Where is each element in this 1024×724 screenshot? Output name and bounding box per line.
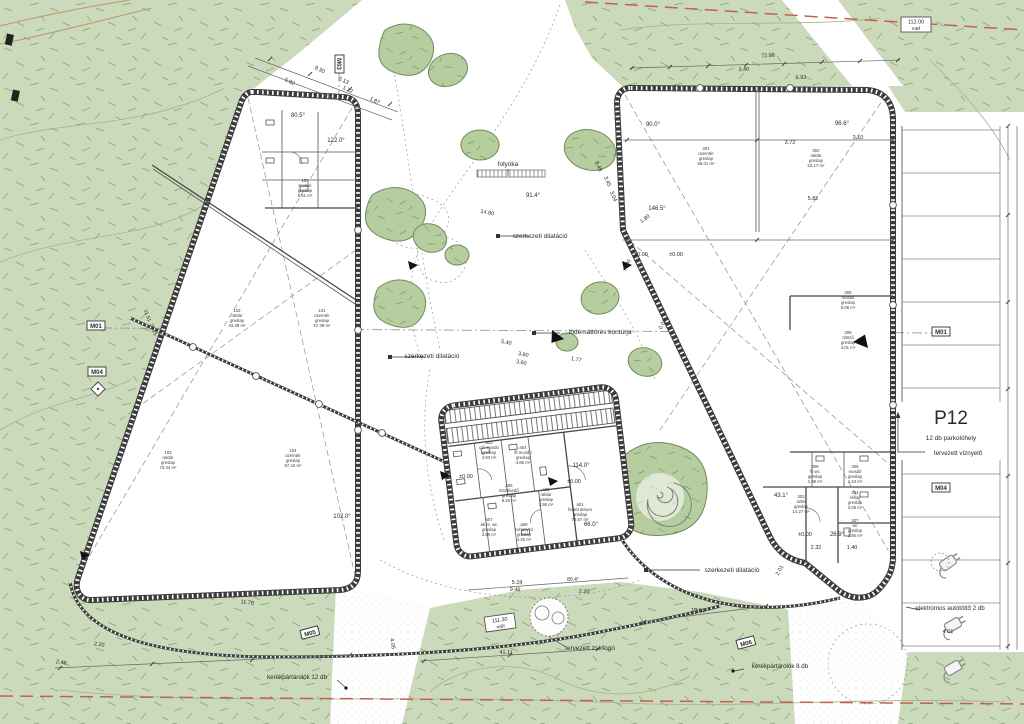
dim-label: 3.40 (738, 67, 749, 74)
survey-marker: M04 (88, 367, 106, 376)
dim-label: 5.28 (512, 580, 523, 587)
survey-marker-label: M04 (91, 370, 103, 376)
elevation-unit: mBf (912, 26, 921, 31)
callout-kerekpar-8: kerékpártárolók 8 db (752, 663, 809, 670)
dim-label: 4.01 (943, 629, 954, 636)
drain-channel (477, 170, 545, 177)
callout-kerekpar-12: kerékpártárolók 12 db (267, 674, 327, 681)
callout-zsirfogo: tervezett zsírfogó (565, 645, 615, 652)
callout-folyoka: folyóka (498, 161, 519, 168)
callout-fodem: födémáttörés kontúrja (569, 329, 632, 336)
survey-marker-label: M03 (335, 58, 341, 70)
dim-label: 3.72 (785, 140, 796, 146)
elevation-marker: 112.00mBf (901, 17, 931, 32)
level-label: ±0.00 (459, 474, 473, 480)
callout-dilatacio-2: szerkezeti dilatáció (405, 353, 460, 360)
survey-marker-label: M01 (90, 324, 102, 330)
level-label: ±0.00 (669, 252, 683, 258)
dim-label: 6.93 (795, 75, 806, 82)
angle-label: 66.0° (584, 522, 599, 528)
dim-label: 5.82 (808, 196, 819, 202)
grease-trap (530, 598, 568, 636)
parking-subtitle: 12 db parkolóhely (926, 435, 977, 442)
angle-label: 80.4° (567, 577, 579, 583)
angle-label: 90.0° (646, 122, 661, 128)
survey-marker: M03 (335, 55, 344, 73)
angle-label: 80.5° (291, 113, 306, 119)
dim-label: 1.40 (847, 545, 858, 551)
tree (374, 280, 426, 328)
parking-code: P12 (934, 408, 968, 429)
elevation-value: 112.00 (908, 20, 924, 26)
building-central-core (440, 386, 633, 558)
callout-viznyelo: tervezett víznyelő (934, 450, 983, 457)
angle-label: 146.5° (648, 206, 666, 212)
angle-label: 26.9° (830, 532, 845, 538)
survey-marker: M04 (932, 483, 950, 492)
dim-label: 72.98 (761, 53, 775, 60)
angle-label: 43.1° (774, 493, 789, 499)
parking-strip-ground (896, 112, 1024, 652)
callout-dilatacio-1: szerkezeti dilatáció (513, 233, 568, 240)
angle-label: 114.0° (573, 463, 591, 469)
callout-dilatacio-3: szerkezeti dilatáció (705, 567, 760, 574)
level-label: ±0.00 (798, 532, 812, 538)
tree (445, 245, 469, 265)
dim-label: 2.32 (811, 545, 822, 551)
level-label: ±0.00 (567, 479, 581, 485)
site-plan: 101üzemtérgreslap57.38 m²102raktárgresla… (0, 0, 1024, 724)
dim-label: 10.91 (691, 608, 705, 615)
survey-marker: M01 (932, 327, 950, 336)
tree (379, 24, 434, 75)
survey-marker: M01 (87, 321, 105, 330)
dim-label: 9.46 (510, 587, 521, 594)
angle-label: 122.0° (327, 138, 345, 144)
survey-marker-label: M01 (935, 330, 947, 336)
tree (461, 130, 499, 160)
survey-marker-label: M04 (935, 486, 947, 492)
angle-label: 91.4° (526, 193, 541, 199)
level-label: ±0.00 (634, 252, 648, 258)
dim-label: 3.10 (853, 135, 864, 141)
dim-label: 41.11 (499, 650, 513, 656)
angle-label: 96.6° (835, 121, 850, 127)
callout-autotolto: elektromos autótöltő 2 db (915, 605, 985, 612)
angle-label: 102.0° (333, 514, 351, 520)
site-plan-svg: 101üzemtérgreslap57.38 m²102raktárgresla… (0, 0, 1024, 724)
dim-label: 2.20 (579, 589, 590, 596)
